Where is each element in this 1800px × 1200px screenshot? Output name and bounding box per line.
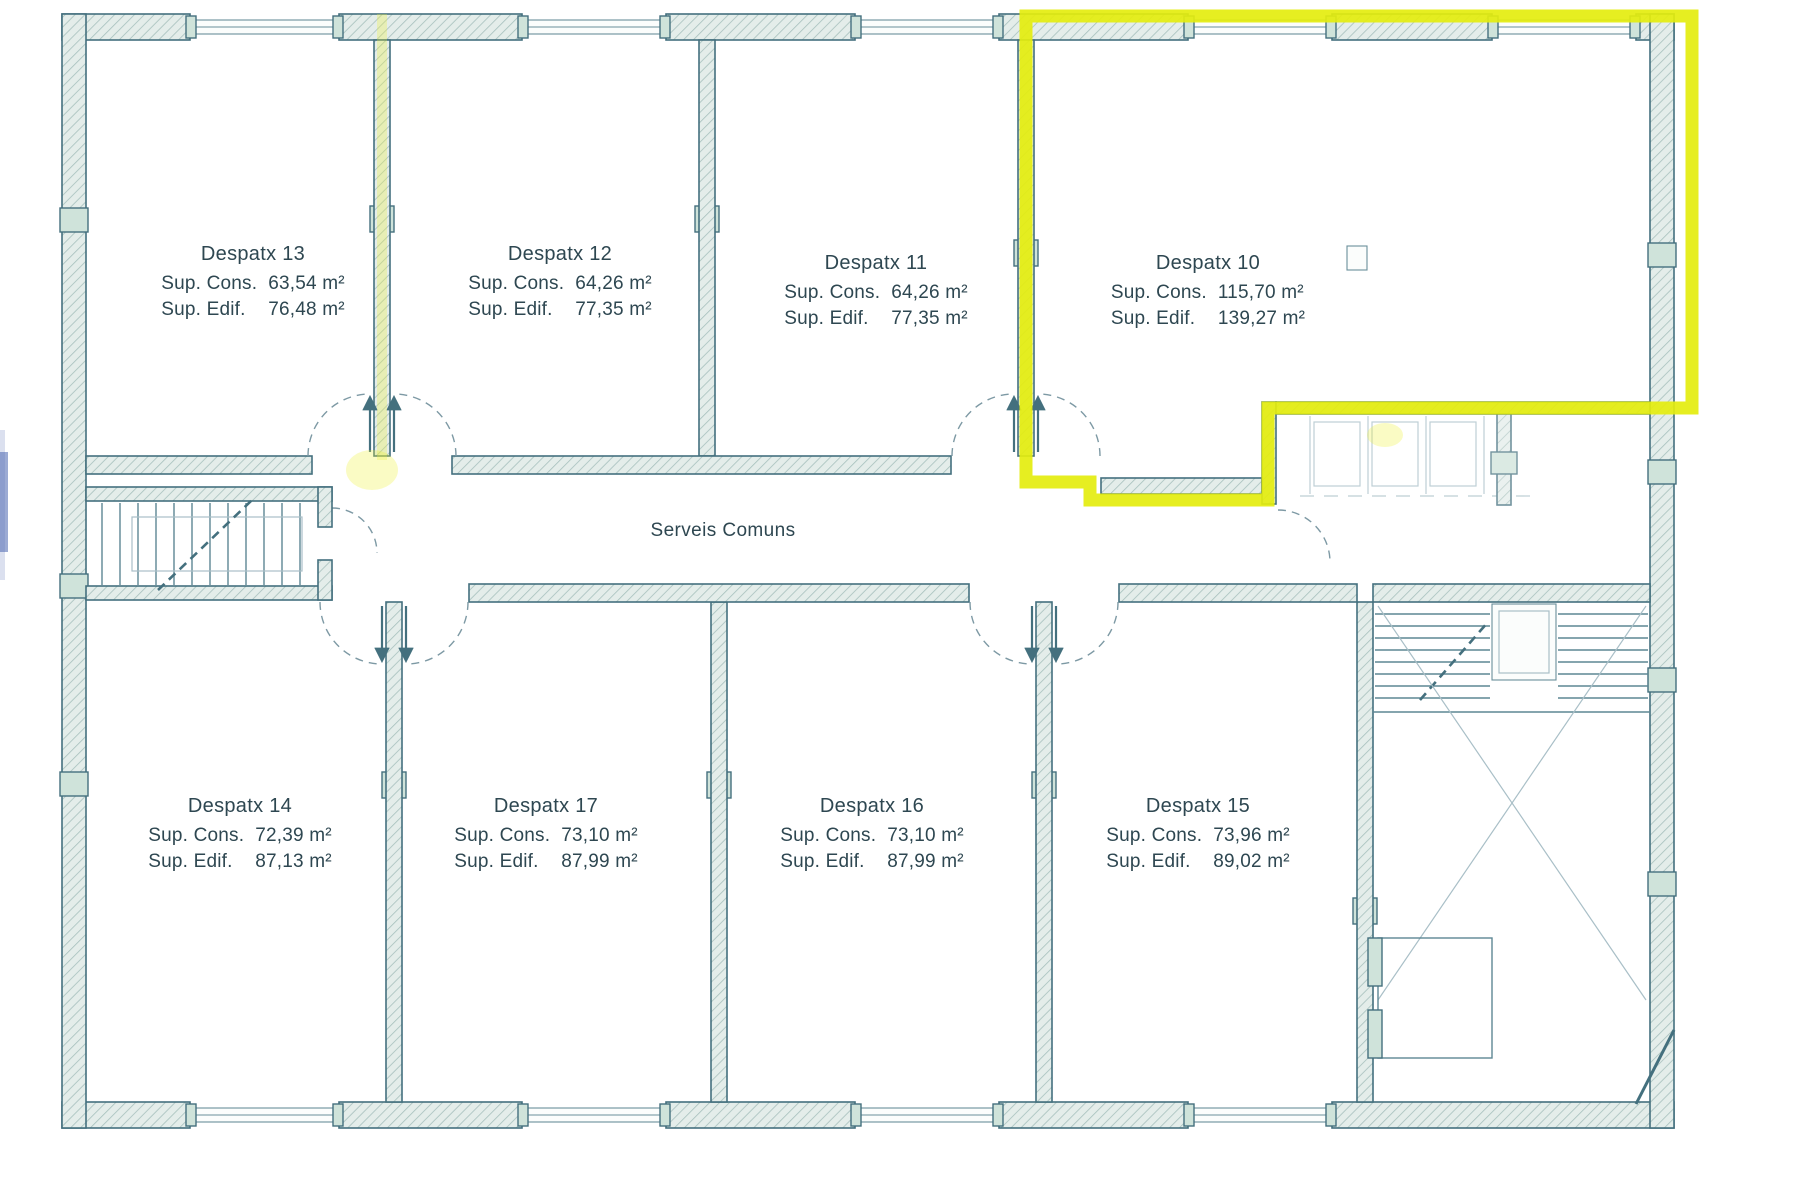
room-name: Despatx 14: [148, 795, 332, 818]
floor-plan-drawing: [0, 0, 1800, 1200]
room-name: Despatx 16: [780, 795, 964, 818]
column-marker: [1347, 246, 1367, 270]
room-label-despatx-16: Despatx 16Sup. Cons.73,10 m²Sup. Edif.87…: [780, 795, 964, 875]
outer-walls: [62, 14, 1674, 1128]
room-name: Despatx 17: [454, 795, 638, 818]
room-area-line: Sup. Cons.115,70 m²: [1111, 280, 1305, 306]
room-area-line: Sup. Edif.87,13 m²: [148, 849, 332, 875]
room-label-despatx-11: Despatx 11Sup. Cons.64,26 m²Sup. Edif.77…: [784, 252, 968, 332]
room-area-line: Sup. Cons.64,26 m²: [468, 271, 652, 297]
room-name: Despatx 10: [1111, 252, 1305, 275]
room-label-despatx-12: Despatx 12Sup. Cons.64,26 m²Sup. Edif.77…: [468, 243, 652, 323]
room-area-line: Sup. Cons.64,26 m²: [784, 280, 968, 306]
room-area-line: Sup. Cons.63,54 m²: [161, 271, 345, 297]
room-area-line: Sup. Cons.73,96 m²: [1106, 823, 1290, 849]
room-name: Despatx 12: [468, 243, 652, 266]
entrance-vestibule: [1368, 938, 1492, 1058]
corridor-label: Serveis Comuns: [651, 520, 796, 542]
room-area-line: Sup. Edif.76,48 m²: [161, 297, 345, 323]
room-label-despatx-13: Despatx 13Sup. Cons.63,54 m²Sup. Edif.76…: [161, 243, 345, 323]
door-swings: [308, 394, 1330, 664]
room-area-line: Sup. Cons.73,10 m²: [454, 823, 638, 849]
room-area-line: Sup. Edif.77,35 m²: [468, 297, 652, 323]
room-label-despatx-15: Despatx 15Sup. Cons.73,96 m²Sup. Edif.89…: [1106, 795, 1290, 875]
elevator: [1492, 604, 1556, 680]
scan-artifact: [0, 430, 8, 580]
left-staircase: [86, 487, 332, 600]
room-label-despatx-14: Despatx 14Sup. Cons.72,39 m²Sup. Edif.87…: [148, 795, 332, 875]
room-name: Despatx 11: [784, 252, 968, 275]
toilet-stalls: [1300, 414, 1530, 505]
room-area-line: Sup. Cons.73,10 m²: [780, 823, 964, 849]
room-area-line: Sup. Edif.87,99 m²: [780, 849, 964, 875]
interior-walls: [374, 40, 1373, 1102]
room-area-line: Sup. Cons.72,39 m²: [148, 823, 332, 849]
right-staircase: [1373, 604, 1650, 1000]
room-area-line: Sup. Edif.87,99 m²: [454, 849, 638, 875]
room-area-line: Sup. Edif.89,02 m²: [1106, 849, 1290, 875]
room-label-despatx-17: Despatx 17Sup. Cons.73,10 m²Sup. Edif.87…: [454, 795, 638, 875]
room-area-line: Sup. Edif.139,27 m²: [1111, 306, 1305, 332]
room-area-line: Sup. Edif.77,35 m²: [784, 306, 968, 332]
room-label-despatx-10: Despatx 10Sup. Cons.115,70 m²Sup. Edif.1…: [1111, 252, 1305, 332]
room-name: Despatx 13: [161, 243, 345, 266]
scanned-floor-plan: Despatx 13Sup. Cons.63,54 m²Sup. Edif.76…: [0, 0, 1800, 1200]
room-name: Despatx 15: [1106, 795, 1290, 818]
